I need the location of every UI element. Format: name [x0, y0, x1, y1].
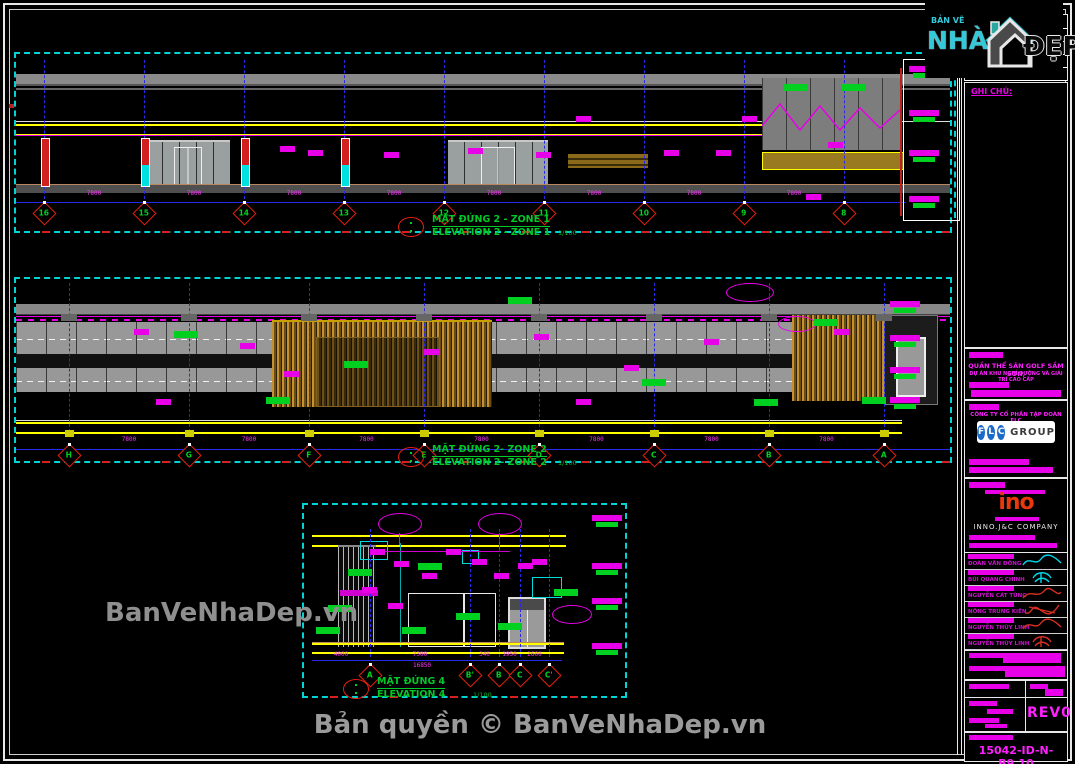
level-mark-bar [890, 301, 920, 307]
staff-role-bar [968, 570, 1014, 575]
elevation2-title-en: ELEVATION 2- ZONE 2 [432, 457, 547, 468]
level-mark-bar [592, 598, 622, 604]
level-mark-bar [909, 150, 939, 156]
dim-tag [308, 150, 323, 156]
dimension-text: 7800 [352, 436, 382, 443]
level-value-bar [894, 374, 916, 379]
dim-tag [424, 349, 439, 355]
grid-bubble: 10 [632, 201, 656, 225]
grid-bubble-label: 8 [836, 206, 851, 219]
level-mark-bar [890, 397, 920, 403]
flc-letter-c: C [997, 425, 1005, 440]
elevation2-title: MẶT ĐỨNG 2- ZONE 2 ELEVATION 2- ZONE 2 1… [398, 444, 628, 474]
highlight-tag [348, 569, 372, 576]
project-label-bar [969, 352, 1003, 358]
dimension-text: 7800 [779, 190, 809, 197]
grid-line [539, 283, 540, 437]
level-value-bar [596, 522, 618, 527]
base-post [880, 430, 889, 437]
fascia-tab [761, 314, 777, 321]
dim-tag [534, 334, 549, 340]
dimension-text: 7800 [679, 190, 709, 197]
base-post [535, 430, 544, 437]
dimension-text: 7800 [582, 436, 612, 443]
dim-tag [742, 116, 757, 122]
elevation1-title: MẶT ĐỨNG 2 - ZONE 1 ELEVATION 2 - ZONE 1… [398, 214, 628, 244]
level-legend-red-line [900, 68, 902, 216]
dimension-text: 7800 [579, 190, 609, 197]
elevation1-title-en: ELEVATION 2 - ZONE 1 [432, 227, 550, 238]
fascia-tab [876, 314, 892, 321]
grid-bubble-label: C [646, 448, 661, 461]
dim-tag [664, 150, 679, 156]
level-legend-cyan-edge [954, 60, 956, 218]
highlight-tag [508, 297, 532, 304]
revision-value: REV0 [1027, 705, 1067, 721]
dim-total: 16850 [407, 662, 437, 669]
dn-label-bar [969, 735, 1013, 740]
staff-signature [1021, 617, 1065, 633]
level-mark-bar [592, 563, 622, 569]
staff-row: NGUYỄN THÙY LINH [965, 617, 1067, 634]
dim-tick [469, 663, 472, 666]
dimension-text: 7800 [379, 190, 409, 197]
highlight-tag [814, 319, 838, 326]
date-label-bar [969, 718, 999, 723]
grid-bubble-label: 15 [136, 206, 151, 219]
designer-value-bar-2 [969, 543, 1057, 548]
base-post [420, 430, 429, 437]
tb-staff-box: ĐOÀN VĂN ĐÔNGBÙI QUANG CHINHNGUYỄN CÁT T… [964, 552, 1068, 652]
section-wall-panel [762, 78, 902, 150]
grid-line [654, 283, 655, 437]
grid-line [769, 283, 770, 437]
elevation2-title-vi: MẶT ĐỨNG 2- ZONE 2 [432, 444, 547, 457]
client-label-bar [969, 404, 999, 410]
dim-tick [243, 201, 246, 204]
dim-tick [768, 443, 771, 446]
grid-bubble: C' [537, 663, 561, 687]
dimension-text: 7300 [405, 651, 435, 658]
glass-entrance-2 [448, 140, 548, 187]
dimension-text: 7800 [479, 190, 509, 197]
dimension-text: 7800 [697, 436, 727, 443]
notes-label: GHI CHÚ: [971, 87, 1012, 96]
level-mark-bar [909, 196, 939, 202]
dim-tick [643, 201, 646, 204]
dim-tag [494, 573, 509, 579]
highlight-tag [842, 84, 866, 91]
staff-signature [1021, 601, 1065, 617]
base-post [65, 430, 74, 437]
drawing-number: 15042-ID-N-B9.10 [965, 744, 1067, 764]
dimension-text: 7800 [812, 436, 842, 443]
elevation2-scale: 1/100 [558, 459, 577, 467]
grid-bubble-label: G [181, 448, 196, 461]
column [141, 138, 150, 187]
dim-tag [284, 371, 299, 377]
base-post [305, 430, 314, 437]
level-value-bar [913, 157, 935, 162]
elevation-2-zone2-drawing: HGFEDCBA7800780078007800780078007800 [14, 277, 952, 463]
highlight-tag [316, 627, 340, 634]
wood-louver-center-inner [316, 337, 440, 407]
title-circle-icon [398, 217, 424, 237]
dim-tag [834, 329, 849, 335]
designer-label-bar [969, 482, 1005, 488]
fascia-tab [181, 314, 197, 321]
dimension-text: 7800 [114, 436, 144, 443]
dim-tag [704, 339, 719, 345]
highlight-tag [344, 361, 368, 368]
project-value-bar [971, 390, 1061, 397]
level-value-bar [894, 404, 916, 409]
staff-signature [1021, 633, 1065, 649]
dim-tick [653, 443, 656, 446]
grid-line [544, 60, 545, 204]
scale-sub-label [969, 701, 997, 706]
logo-banve-text: BẢN VẼ [931, 16, 964, 25]
dim-tag [806, 194, 821, 200]
staff-role-bar [968, 554, 1014, 559]
fascia-tab [646, 314, 662, 321]
grid-bubble-label: 9 [736, 206, 751, 219]
highlight-tag [418, 563, 442, 570]
tb-notes-box: GHI CHÚ: [964, 82, 1068, 348]
base-post [185, 430, 194, 437]
dim-tick [188, 443, 191, 446]
logo-dep-text: ĐẸP [1023, 32, 1075, 62]
highlight-tag [642, 379, 666, 386]
project-label-bar-2 [969, 382, 1009, 388]
staff-row: BÙI QUANG CHINH [965, 569, 1067, 586]
staff-role-bar [968, 586, 1014, 591]
staff-row: NGUYỄN CÁT TÙNG [965, 585, 1067, 602]
watermark-side: BanVeNhaDep.vn [105, 598, 358, 628]
dim-tick [543, 201, 546, 204]
grid-divider-h-right [1026, 697, 1067, 698]
grid-bubble-label: 14 [236, 206, 251, 219]
dim-line-blue [312, 660, 562, 661]
dim-tick [548, 663, 551, 666]
dim-tag [576, 116, 591, 122]
grid-line [424, 283, 425, 437]
level-mark-bar [909, 110, 939, 116]
grid-line [189, 283, 190, 437]
dim-tag [536, 152, 551, 158]
staff-name: NGUYỄN CÁT TÙNG [968, 593, 1027, 599]
level-mark-bar [592, 643, 622, 649]
tb-client-box: CÔNG TY CỔ PHẦN TẬP ĐOÀN FLC F L C GROUP [964, 400, 1068, 478]
staff-signature [1021, 569, 1065, 585]
dimension-text: 4000 [326, 651, 356, 658]
title-circle-icon [343, 679, 369, 699]
elevation1-scale: 1/100 [558, 229, 577, 237]
grid-bubble-label: 13 [336, 206, 351, 219]
dim-tag [240, 343, 255, 349]
elevation4-scale: 1/100 [473, 691, 492, 699]
grid-divider-h-left [965, 697, 1025, 698]
grid-bubble-label: B [761, 448, 776, 461]
tb-scale-rev-grid: REV0 [964, 680, 1068, 732]
callout-ellipse-3 [552, 605, 592, 624]
grid-line [499, 529, 500, 657]
highlight-tag [862, 397, 886, 404]
counter-block [568, 154, 648, 168]
dim-tag [388, 603, 403, 609]
elevation4-title-vi: MẶT ĐỨNG 4 [377, 676, 445, 689]
highlight-tag [266, 397, 290, 404]
tb-project-box: QUẦN THỂ SÂN GOLF SẦM SƠN, DỰ ÁN KHU NGH… [964, 348, 1068, 400]
dimension-text: 7800 [179, 190, 209, 197]
grid-line [549, 529, 550, 657]
highlight-tag [498, 623, 522, 630]
dim-tag [828, 142, 843, 148]
level-value-bar [596, 605, 618, 610]
dim-tick [843, 201, 846, 204]
callout-ellipse-1 [378, 513, 422, 535]
level-mark-bar [890, 367, 920, 373]
dim-tag [156, 399, 171, 405]
dimension-text: 7800 [234, 436, 264, 443]
dim-tick [68, 443, 71, 446]
grid-line [744, 60, 745, 204]
dt-label-1 [969, 653, 1005, 658]
dim-tag [370, 549, 385, 555]
highlight-tag [754, 399, 778, 406]
fascia-band [16, 304, 950, 315]
interior-line-1 [400, 543, 401, 647]
dim-tick [498, 663, 501, 666]
door-transom [510, 599, 544, 610]
dim-tag [394, 561, 409, 567]
level-value-bar [913, 117, 935, 122]
dt-value-1 [1003, 653, 1061, 663]
grid-line [844, 60, 845, 204]
dim-tag [472, 559, 487, 565]
flc-group-text: GROUP [1010, 427, 1055, 438]
dim-tag [446, 549, 461, 555]
staff-name: ĐOÀN VĂN ĐÔNG [968, 561, 1021, 567]
base-post [765, 430, 774, 437]
glass-entrance-1 [146, 140, 230, 187]
client-value-bar-2 [969, 467, 1053, 473]
dim-tick [143, 201, 146, 204]
dim-tag [716, 150, 731, 156]
partition-outline-1 [408, 593, 464, 647]
fascia-tab [61, 314, 77, 321]
dimension-text: 2600 [520, 651, 550, 658]
grid-bubble-label: 16 [36, 206, 51, 219]
flc-group-logo: F L C GROUP [977, 421, 1055, 443]
dim-tick [308, 443, 311, 446]
highlight-tag [456, 613, 480, 620]
highlight-tag [174, 331, 198, 338]
staff-row: NGUYỄN THÙY LINH [965, 633, 1067, 650]
drawing-sheet: 1615141312111098780078007800780078007800… [0, 0, 1075, 764]
grid-bubble: 9 [732, 201, 756, 225]
ramp-block [762, 152, 904, 170]
elevation1-title-vi: MẶT ĐỨNG 2 - ZONE 1 [432, 214, 550, 227]
grid-bubble-label: F [301, 448, 316, 461]
grid-bubble: 13 [332, 201, 356, 225]
dim-tag [362, 587, 377, 593]
scale-label-bar [969, 684, 1009, 689]
dim-tick [883, 443, 886, 446]
callout-ellipse-2 [778, 316, 816, 332]
staff-role-bar [968, 602, 1014, 607]
highlight-tag [554, 589, 578, 596]
grid-line [644, 60, 645, 204]
dim-tag [134, 329, 149, 335]
staff-signature [1021, 553, 1065, 569]
watermark-bottom: Bản quyền © BanVeNhaDep.vn [310, 710, 770, 740]
column [241, 138, 250, 187]
dim-tick [519, 663, 522, 666]
rev-small-block [1045, 689, 1063, 696]
title-circle-icon [398, 447, 424, 467]
dim-tag [422, 573, 437, 579]
grid-line [69, 283, 70, 437]
column [341, 138, 350, 187]
date-value-bar [985, 724, 1007, 728]
dim-tick [743, 201, 746, 204]
grid-divider-v [1025, 681, 1026, 731]
level-value-bar [894, 308, 916, 313]
staff-name: NÔNG TRUNG KIÊN [968, 609, 1026, 615]
dimension-text: 7800 [467, 436, 497, 443]
dim-line-blue [16, 202, 906, 203]
elevation4-title: MẶT ĐỨNG 4 ELEVATION 4 1/100 [343, 676, 533, 706]
dim-tag [280, 146, 295, 152]
level-value-bar [913, 203, 935, 208]
grid-line [309, 283, 310, 437]
dt-value-2 [1005, 666, 1065, 677]
level-value-bar [596, 650, 618, 655]
dim-tick [343, 201, 346, 204]
grid-bubble-label: A [876, 448, 891, 461]
highlight-tag [402, 627, 426, 634]
staff-role-bar [968, 634, 1014, 639]
grid-line [520, 529, 521, 657]
dim-tick [43, 201, 46, 204]
grid-bubble-label: C' [541, 668, 556, 681]
dim-tag [576, 399, 591, 405]
banvenhadep-logo: BẢN VẼ NHÀ ĐẸP [925, 0, 1063, 78]
dim-tag [468, 148, 483, 154]
grid-bubble-label: H [61, 448, 76, 461]
dim-tag [532, 559, 547, 565]
staff-signature [1021, 585, 1065, 601]
callout-ellipse-1 [726, 283, 774, 302]
level-value-bar [894, 342, 916, 347]
level-mark-bar [592, 515, 622, 521]
tb-drawing-number-box: 15042-ID-N-B9.10 [964, 732, 1068, 762]
dimension-text: 7800 [79, 190, 109, 197]
grid-line [470, 529, 471, 657]
level-value-bar [596, 570, 618, 575]
column [41, 138, 50, 187]
ceiling-zigzag [762, 86, 902, 146]
designer-name: INNO.J&C COMPANY [965, 523, 1067, 531]
callout-ellipse-2 [478, 513, 522, 535]
tb-drawing-title-box [964, 650, 1068, 680]
level-mark-bar [890, 335, 920, 341]
partition-outline-2 [464, 593, 496, 647]
staff-role-bar [968, 618, 1014, 623]
grid-bubble: 16 [32, 201, 56, 225]
grid-bubble: 8 [832, 201, 856, 225]
grid-bubble: 15 [132, 201, 156, 225]
elevation-2-zone1-drawing: 1615141312111098780078007800780078007800… [14, 52, 952, 233]
dimension-text: 7800 [279, 190, 309, 197]
dim-tag [384, 152, 399, 158]
client-value-bar-1 [969, 459, 1029, 465]
dim-tick [369, 663, 372, 666]
designer-value-bar-1 [969, 535, 1035, 540]
tb-designer-box: ino INNO.J&C COMPANY [964, 478, 1068, 554]
grid-line [884, 283, 885, 437]
highlight-tag [784, 84, 808, 91]
dim-tag [624, 365, 639, 371]
fascia-tab [416, 314, 432, 321]
grid-bubble: 14 [232, 201, 256, 225]
dim-tag [518, 563, 533, 569]
grid-bubble-label: 10 [636, 206, 651, 219]
fascia-tab [531, 314, 547, 321]
dim-tick [443, 201, 446, 204]
base-post [650, 430, 659, 437]
grid-line [444, 60, 445, 204]
scale-value-bar [987, 709, 1013, 714]
flc-letter-l: L [987, 425, 995, 440]
interior-line-2 [380, 551, 510, 552]
inno-tagline-bar [995, 517, 1039, 521]
staff-row: NÔNG TRUNG KIÊN [965, 601, 1067, 618]
staff-row: ĐOÀN VĂN ĐÔNG [965, 553, 1067, 570]
fascia-tab [301, 314, 317, 321]
flc-letter-f: F [977, 425, 985, 440]
inno-logo: ino [965, 491, 1067, 515]
staff-name: BÙI QUANG CHINH [968, 577, 1025, 583]
elevation4-title-en: ELEVATION 4 [377, 689, 445, 700]
